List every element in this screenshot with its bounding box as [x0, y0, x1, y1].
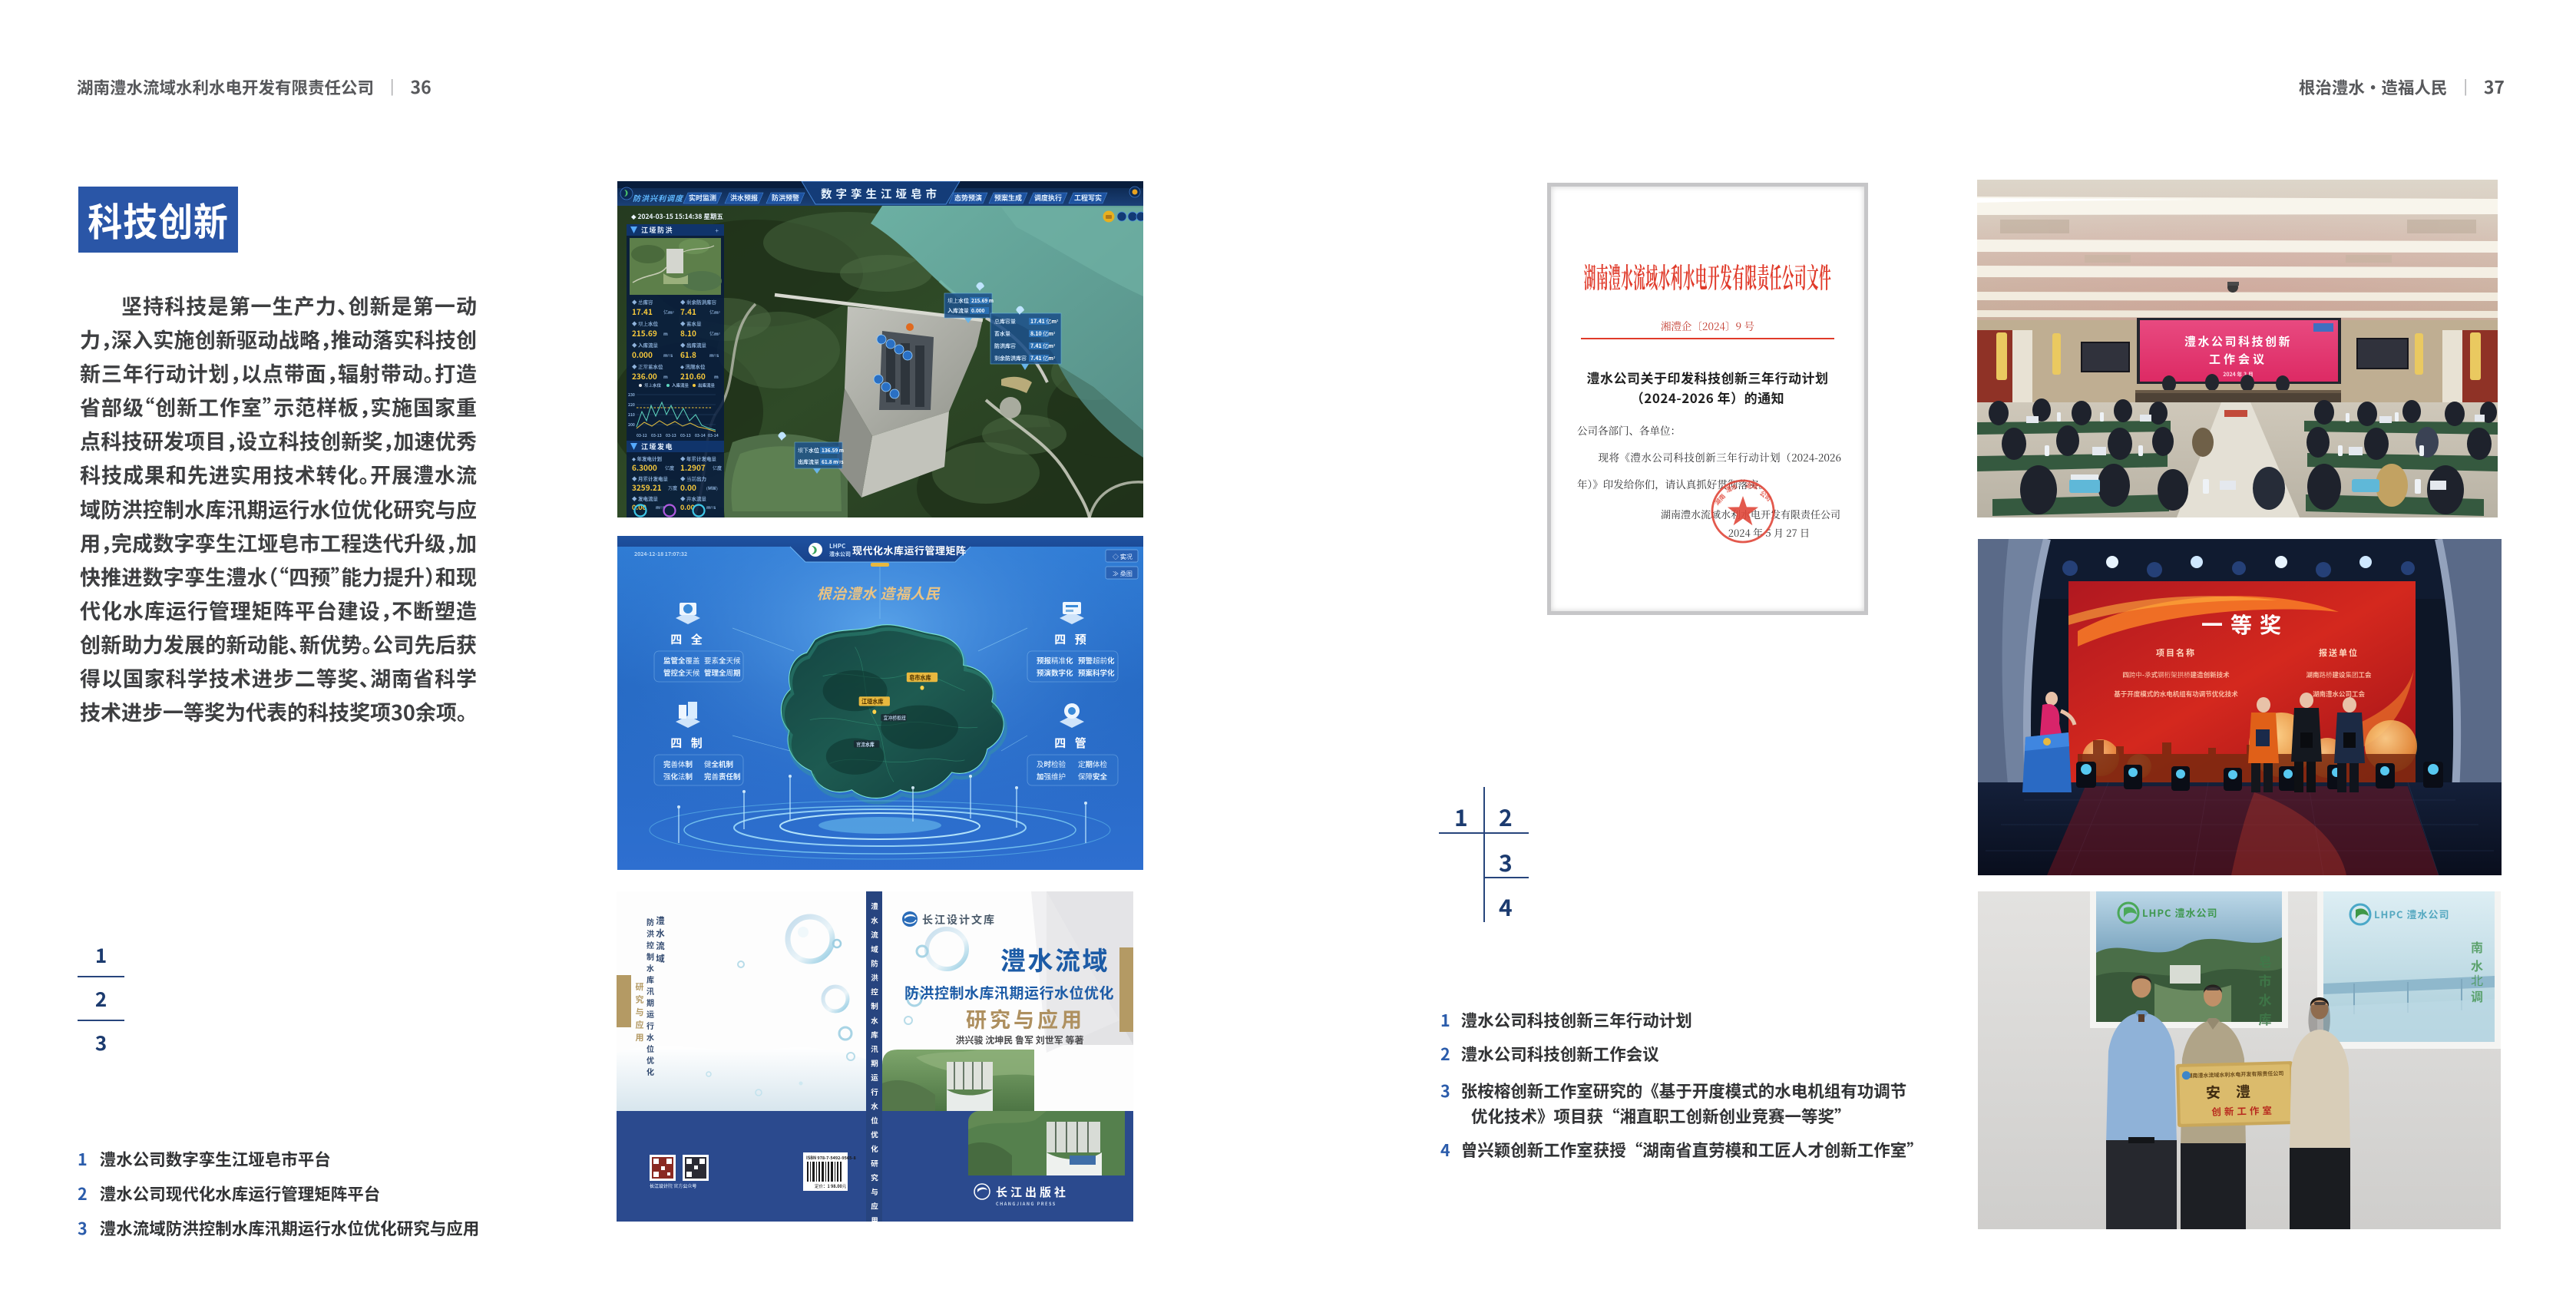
- svg-text:研究与应用: 研究与应用: [966, 1003, 1085, 1033]
- svg-text:一等奖: 一等奖: [2201, 609, 2289, 640]
- svg-text:安澧: 安澧: [2206, 1080, 2267, 1103]
- svg-text:亿m³: 亿m³: [663, 309, 674, 316]
- svg-text:210.60: 210.60: [680, 370, 706, 382]
- svg-text:2024-12-18 17:07:32: 2024-12-18 17:07:32: [634, 551, 687, 558]
- svg-text:长江出版社: 长江出版社: [996, 1184, 1069, 1200]
- svg-text:(MW): (MW): [706, 484, 718, 491]
- svg-text:工作会议: 工作会议: [2209, 351, 2267, 367]
- svg-text:澧水流域: 澧水流域: [1000, 941, 1109, 977]
- svg-text:四 预: 四 预: [1054, 631, 1089, 647]
- svg-text:◆ 剩余防洪库容: ◆ 剩余防洪库容: [680, 298, 716, 306]
- svg-text:四跨中-承式钢桁架拱桥建造创新技术: 四跨中-承式钢桁架拱桥建造创新技术: [2122, 670, 2230, 679]
- svg-text:61.8 m³/s: 61.8 m³/s: [822, 458, 844, 465]
- svg-text:湖南: 湖南: [1713, 492, 1728, 507]
- svg-text:四 全: 四 全: [670, 631, 705, 647]
- svg-text:◆ 总库容: ◆ 总库容: [632, 298, 653, 306]
- svg-text:报送单位: 报送单位: [2319, 646, 2359, 659]
- svg-text:强化法制: 强化法制: [663, 771, 693, 782]
- svg-text:03-14: 03-14: [695, 433, 706, 438]
- svg-text:及时检验: 及时检验: [1037, 759, 1066, 769]
- svg-text:万度: 万度: [668, 484, 677, 491]
- svg-text:防洪控制水库汛期运行水位优化: 防洪控制水库汛期运行水位优化: [645, 916, 656, 1077]
- svg-text:长江设计文库: 长江设计文库: [922, 912, 996, 927]
- svg-text:亿m³: 亿m³: [709, 330, 720, 337]
- svg-text:03-13: 03-13: [680, 433, 691, 438]
- svg-text:项目名称: 项目名称: [2156, 646, 2196, 659]
- svg-text:皂市水库: 皂市水库: [909, 673, 931, 683]
- svg-text:136.59 m: 136.59 m: [822, 446, 844, 454]
- svg-text:亿m³: 亿m³: [709, 309, 720, 316]
- svg-text:出库流量: 出库流量: [798, 458, 819, 466]
- svg-text:流域: 流域: [1744, 481, 1758, 491]
- svg-text:≫ 桑图: ≫ 桑图: [1113, 570, 1133, 578]
- svg-text:入库流量: 入库流量: [947, 307, 969, 315]
- svg-text:230: 230: [628, 392, 635, 398]
- svg-text:236.00: 236.00: [632, 370, 657, 382]
- svg-text:防洪兴利调度: 防洪兴利调度: [633, 192, 684, 203]
- svg-text:61.8: 61.8: [680, 349, 696, 360]
- svg-text:根治澧水 造福人民: 根治澧水 造福人民: [817, 583, 941, 603]
- svg-text:预案科学化: 预案科学化: [1078, 667, 1115, 678]
- svg-text:监管全覆盖: 监管全覆盖: [663, 655, 700, 666]
- svg-text:入库流量: 入库流量: [672, 382, 689, 388]
- svg-text:澧水流域防洪控制水库汛期运行水位优化研究与应用: 澧水流域防洪控制水库汛期运行水位优化研究与应用: [869, 901, 880, 1222]
- svg-text:官渡水库: 官渡水库: [856, 740, 875, 748]
- svg-text:03-12: 03-12: [637, 433, 647, 438]
- svg-text:管理全周期: 管理全周期: [704, 667, 741, 678]
- svg-text:澧水: 澧水: [1724, 482, 1739, 495]
- svg-text:m: m: [714, 373, 719, 380]
- svg-text:数字孪生江垭皂市: 数字孪生江垭皂市: [821, 186, 941, 202]
- svg-text:亿度: 亿度: [713, 465, 722, 471]
- svg-text:预警超前化: 预警超前化: [1078, 655, 1115, 666]
- svg-text:完善体制: 完善体制: [663, 759, 693, 769]
- svg-text:四 制: 四 制: [670, 735, 705, 751]
- svg-text:◆ 2024-03-15 15:14:38 星期五: ◆ 2024-03-15 15:14:38 星期五: [631, 212, 723, 221]
- svg-text:定价：1 98.00元: 定价：1 98.00元: [815, 1183, 847, 1189]
- svg-text:基于开度模式的水电机组有功调节优化技术: 基于开度模式的水电机组有功调节优化技术: [2114, 689, 2238, 699]
- svg-text:江垭防洪: 江垭防洪: [641, 225, 673, 235]
- svg-text:健全机制: 健全机制: [704, 759, 733, 769]
- svg-text:研究与应用: 研究与应用: [633, 980, 646, 1044]
- svg-text:四 管: 四 管: [1054, 735, 1089, 751]
- svg-text:洪兴骏 沈坤民 鲁军 刘世军 等著: 洪兴骏 沈坤民 鲁军 刘世军 等著: [956, 1033, 1084, 1046]
- svg-text:◆ 蓄水量: ◆ 蓄水量: [680, 319, 702, 327]
- svg-text:0.000: 0.000: [632, 349, 653, 360]
- svg-text:预演数字化: 预演数字化: [1037, 667, 1073, 678]
- svg-text:皂市水库: 皂市水库: [2256, 951, 2275, 1028]
- svg-text:坝上水位: 坝上水位: [947, 297, 969, 305]
- svg-text:湖南路桥建设集团工会: 湖南路桥建设集团工会: [2306, 670, 2372, 679]
- svg-text:CHANGJIANG PRESS: CHANGJIANG PRESS: [996, 1201, 1057, 1207]
- svg-text:0.000: 0.000: [971, 306, 985, 314]
- svg-text:防洪库容: 防洪库容: [994, 342, 1016, 350]
- svg-text:8.10: 8.10: [680, 327, 696, 339]
- svg-text:ISBN 978-7-5492-9565-8: ISBN 978-7-5492-9565-8: [806, 1155, 856, 1161]
- svg-text:220: 220: [628, 402, 635, 408]
- svg-text:总库容量: 总库容量: [994, 318, 1016, 326]
- svg-text:m³/s: m³/s: [706, 504, 716, 511]
- svg-text:长江设计院 官方公众号: 长江设计院 官方公众号: [650, 1182, 696, 1189]
- svg-text:03-13: 03-13: [651, 433, 662, 438]
- svg-text:出库流量: 出库流量: [698, 382, 716, 388]
- svg-text:7.41: 7.41: [680, 306, 696, 317]
- svg-text:m³/s: m³/s: [709, 352, 719, 359]
- svg-text:澧水公司: 澧水公司: [829, 551, 851, 558]
- svg-text:南水北调: 南水北调: [2468, 937, 2486, 1005]
- svg-text:管控全天候: 管控全天候: [663, 667, 700, 678]
- svg-text:8.10 亿m³: 8.10 亿m³: [1030, 330, 1055, 338]
- svg-text:湖南澧水公司工会: 湖南澧水公司工会: [2313, 689, 2366, 699]
- svg-text:◆ 入库流量: ◆ 入库流量: [632, 341, 658, 349]
- svg-text:江垭水库: 江垭水库: [861, 697, 884, 706]
- svg-text:江垭发电: 江垭发电: [641, 441, 673, 451]
- svg-text:1.2907: 1.2907: [680, 461, 706, 473]
- svg-text:17.41 亿m³: 17.41 亿m³: [1030, 318, 1058, 326]
- svg-text:LHPC 澧水公司: LHPC 澧水公司: [2142, 905, 2218, 920]
- svg-text:预案生成: 预案生成: [994, 193, 1022, 203]
- svg-text:0.00: 0.00: [680, 481, 696, 493]
- svg-text:预报精准化: 预报精准化: [1037, 655, 1073, 666]
- svg-text:宜冲桥枢纽: 宜冲桥枢纽: [884, 714, 906, 722]
- svg-text:◆ 出库流量: ◆ 出库流量: [680, 341, 706, 349]
- svg-text:坝上水位: 坝上水位: [644, 382, 662, 388]
- svg-text:◆ 发电流量: ◆ 发电流量: [632, 494, 658, 502]
- svg-text:17.41: 17.41: [632, 306, 653, 317]
- svg-text:澧水公司科技创新: 澧水公司科技创新: [2184, 333, 2292, 349]
- svg-text:7.41 亿m³: 7.41 亿m³: [1030, 342, 1055, 350]
- svg-text:实时监测: 实时监测: [689, 193, 716, 203]
- svg-text:定期体检: 定期体检: [1078, 759, 1108, 769]
- svg-text:◆ 弃水流量: ◆ 弃水流量: [680, 494, 706, 502]
- svg-text:工程写实: 工程写实: [1074, 193, 1102, 203]
- svg-text:亿度: 亿度: [665, 465, 674, 471]
- svg-text:完善责任制: 完善责任制: [704, 771, 741, 782]
- svg-text:◆ 汛限水位: ◆ 汛限水位: [680, 362, 706, 370]
- svg-text:蓄水量: 蓄水量: [994, 330, 1010, 338]
- svg-text:剩余防洪库容: 剩余防洪库容: [994, 355, 1027, 362]
- svg-text:7.41 亿m³: 7.41 亿m³: [1030, 355, 1055, 362]
- svg-text:公司: 公司: [1758, 489, 1772, 504]
- svg-text:◆ 坝上水位: ◆ 坝上水位: [632, 319, 658, 327]
- svg-text:◇ 实况: ◇ 实况: [1113, 553, 1133, 561]
- svg-text:+: +: [715, 226, 719, 235]
- svg-text:LHPC 澧水公司: LHPC 澧水公司: [2374, 907, 2450, 921]
- svg-text:210: 210: [628, 412, 635, 418]
- svg-text:03-13: 03-13: [666, 433, 676, 438]
- svg-text:03-14: 03-14: [708, 433, 719, 438]
- svg-text:m: m: [663, 373, 668, 380]
- svg-text:215.69: 215.69: [632, 327, 657, 339]
- svg-text:3259.21: 3259.21: [632, 481, 662, 493]
- svg-text:◆ 正常蓄水位: ◆ 正常蓄水位: [632, 362, 663, 370]
- svg-text:加强维护: 加强维护: [1037, 771, 1066, 782]
- svg-text:现代化水库运行管理矩阵: 现代化水库运行管理矩阵: [852, 543, 967, 557]
- svg-text:m³/s: m³/s: [663, 352, 673, 359]
- svg-text:LHPC: LHPC: [829, 542, 846, 551]
- svg-text:态势预演: 态势预演: [954, 193, 982, 203]
- svg-text:防洪预警: 防洪预警: [772, 193, 799, 203]
- svg-text:m: m: [663, 330, 668, 337]
- svg-text:防洪控制水库汛期运行水位优化: 防洪控制水库汛期运行水位优化: [904, 982, 1114, 1003]
- svg-text:200: 200: [628, 422, 635, 428]
- svg-text:坝下水位: 坝下水位: [798, 447, 819, 455]
- svg-text:洪水预报: 洪水预报: [730, 193, 758, 203]
- svg-text:保障安全: 保障安全: [1078, 771, 1108, 782]
- svg-text:调度执行: 调度执行: [1034, 193, 1062, 203]
- svg-text:215.69 m: 215.69 m: [971, 296, 994, 304]
- svg-text:创新工作室: 创新工作室: [2211, 1103, 2275, 1119]
- svg-text:6.3000: 6.3000: [632, 461, 657, 473]
- svg-text:要素全天候: 要素全天候: [704, 655, 741, 666]
